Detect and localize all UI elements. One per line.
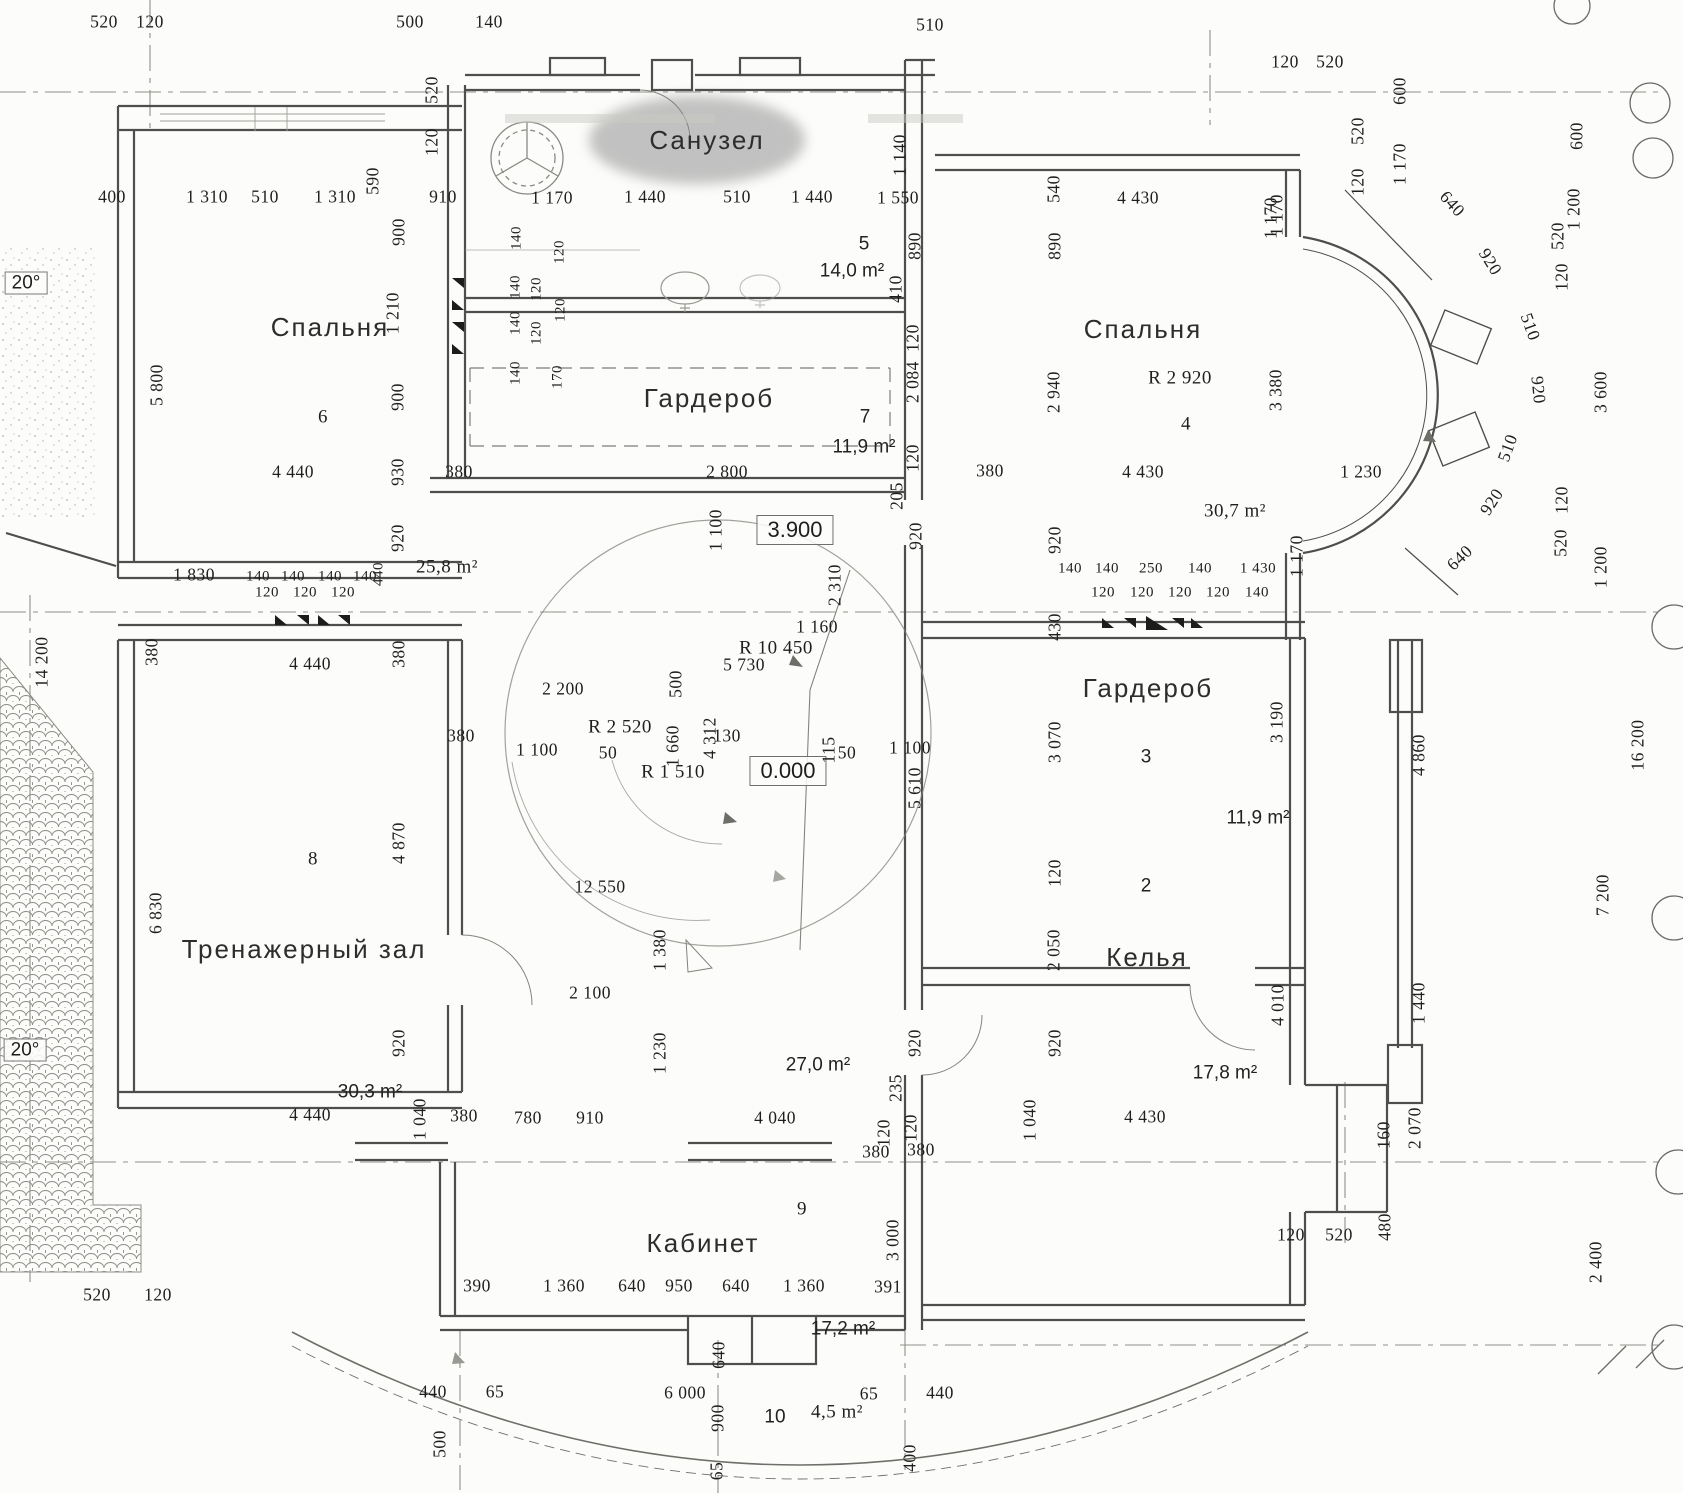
dimension-label: 600 [1391,77,1409,105]
dimension-label: 500 [667,670,685,698]
dimension-label: 1 360 [543,1277,585,1295]
dimension-label: 120 [331,586,355,601]
dimension-label: 410 [887,275,905,303]
dimension-label: 5 800 [148,364,166,406]
dimension-label: 170 [551,365,566,389]
dimension-label: 120 [293,586,317,601]
dimension-label: 380 [450,1107,478,1125]
dimension-label: 11,9 m² [1226,809,1289,828]
dimension-label: 1 550 [877,189,919,207]
labels-layer: 5201205001405101205206005201201 1706001 … [0,0,1683,1493]
dimension-label: 120 [1046,859,1064,887]
slope-label: 20° [4,1039,47,1062]
dimension-label: 1 230 [1340,463,1382,481]
dimension-label: 480 [1376,1213,1394,1241]
dimension-label: 1 430 [1240,562,1276,577]
dimension-label: 3 000 [884,1219,902,1261]
dimension-label: 500 [431,1430,449,1458]
dimension-label: 140 [281,570,305,585]
slope-label: 20° [5,272,48,295]
dimension-label: 4 430 [1124,1108,1166,1126]
dimension-label: 2 [1141,877,1152,896]
room-name-label: Кабинет [647,1230,760,1256]
dimension-label: 1 210 [384,292,402,334]
dimension-label: 380 [862,1143,890,1161]
dimension-label: 2 070 [1406,1107,1424,1149]
dimension-label: 4 430 [1122,463,1164,481]
dimension-label: 120 [423,128,441,156]
dimension-label: 440 [419,1383,447,1401]
dimension-label: 120 [904,324,922,352]
dimension-label: 120 [1206,586,1230,601]
dimension-label: 1 100 [516,741,558,759]
dimension-label: 380 [390,640,408,668]
dimension-label: 3 380 [1267,369,1285,411]
dimension-label: 510 [1517,311,1543,343]
dimension-label: 2 400 [1587,1241,1605,1283]
dimension-label: 1 830 [173,566,215,584]
dimension-label: 2 940 [1045,371,1063,413]
dimension-label: 25,8 m² [416,558,478,577]
dimension-label: 900 [390,218,408,246]
dimension-label: 10 [764,1408,785,1427]
dimension-label: 900 [389,383,407,411]
dimension-label: 1 310 [314,188,356,206]
dimension-label: 65 [860,1385,879,1403]
room-name-label: Санузел [649,127,764,153]
dimension-label: 1 360 [783,1277,825,1295]
dimension-label: 2 100 [569,984,611,1002]
dimension-label: 520 [1549,222,1567,250]
dimension-label: 440 [926,1384,954,1402]
dimension-label: 12 550 [574,878,625,896]
dimension-label: 1 310 [186,188,228,206]
dimension-label: 780 [514,1109,542,1127]
dimension-label: 4 870 [390,822,408,864]
dimension-label: 3 600 [1592,371,1610,413]
dimension-label: 520 [1325,1226,1353,1244]
dimension-label: 2 050 [1045,929,1063,971]
dimension-label: 920 [1046,526,1064,554]
dimension-label: 6 [318,408,328,427]
dimension-label: R 2 920 [1148,369,1212,388]
room-name-label: Тренажерный зал [182,936,427,962]
dimension-label: 910 [429,188,457,206]
dimension-label: 120 [554,298,569,322]
dimension-label: 205 [888,482,906,510]
dimension-label: 520 [1316,53,1344,71]
dimension-label: 380 [143,638,161,666]
dimension-label: 1 170 [1288,535,1306,577]
dimension-label: 140 [510,226,525,250]
dimension-label: 520 [1349,117,1367,145]
dimension-label: 920 [906,1029,924,1057]
dimension-label: 120 [1271,53,1299,71]
dimension-label: 380 [447,727,475,745]
dimension-label: 890 [1046,232,1064,260]
dimension-label: R 1 510 [641,763,705,782]
dimension-label: 400 [98,188,126,206]
dimension-label: 500 [396,13,424,31]
dimension-label: 120 [1091,586,1115,601]
dimension-label: 6 000 [664,1384,706,1402]
dimension-label: 510 [251,188,279,206]
dimension-label: 1 440 [791,188,833,206]
dimension-label: 4 430 [1117,189,1159,207]
dimension-label: 590 [364,167,382,195]
dimension-label: 120 [1349,168,1367,196]
dimension-label: 140 [318,570,342,585]
dimension-label: 140 [246,570,270,585]
dimension-label: 4 010 [1269,984,1287,1026]
dimension-label: 120 [1130,586,1154,601]
dimension-label: 390 [463,1277,491,1295]
room-name-label: Гардероб [1083,675,1213,701]
dimension-label: 400 [901,1444,919,1472]
dimension-label: 5 730 [723,656,765,674]
dimension-label: 6 830 [147,892,165,934]
dimension-label: 520 [423,76,441,104]
room-name-label: Спальня [271,314,389,340]
dimension-label: 1 100 [707,509,725,551]
dimension-label: 30,3 m² [338,1083,402,1102]
dimension-label: 520 [83,1286,111,1304]
dimension-label: 920 [1475,246,1505,279]
dimension-label: 5 610 [906,767,924,809]
dimension-label: 140 [475,13,503,31]
dimension-label: 30,7 m² [1204,502,1266,521]
dimension-label: 640 [1436,188,1468,220]
dimension-label: 140 [1095,562,1119,577]
dimension-label: 440 [372,562,387,586]
dimension-label: 2 200 [542,680,584,698]
dimension-label: 1 200 [1565,188,1583,230]
dimension-label: 2 310 [826,564,844,606]
dimension-label: 14,0 m² [820,262,884,281]
dimension-label: 140 [1188,562,1212,577]
dimension-label: 4 440 [289,655,331,673]
dimension-label: 120 [530,277,545,301]
dimension-label: 250 [1139,562,1163,577]
dimension-label: 120 [144,1286,172,1304]
dimension-label: 900 [709,1404,727,1432]
dimension-label: 920 [390,1029,408,1057]
dimension-label: 4 040 [754,1109,796,1127]
dimension-label: 4 440 [289,1106,331,1124]
dimension-label: 640 [618,1277,646,1295]
dimension-label: 920 [1528,375,1548,404]
dimension-label: 920 [389,524,407,552]
dimension-label: 8 [308,850,318,869]
dimension-label: 1 140 [891,134,909,176]
dimension-label: 160 [1375,1121,1393,1149]
dimension-label: 391 [874,1278,902,1296]
dimension-label: 120 [136,13,164,31]
dimension-label: 14 200 [33,636,51,687]
dimension-label: 1 160 [796,618,838,636]
dimension-label: 1 040 [1021,1099,1039,1141]
dimension-label: 4 440 [272,463,314,481]
dimension-label: 11,9 m² [832,438,895,457]
dimension-label: 640 [710,1341,728,1369]
dimension-label: 510 [916,16,944,34]
level-mark: 0.000 [749,756,826,786]
dimension-label: 120 [1553,486,1571,514]
dimension-label: 2 084 [904,361,922,403]
dimension-label: 3 190 [1268,701,1286,743]
dimension-label: 4 860 [1410,734,1428,776]
dimension-label: 27,0 m² [786,1056,850,1075]
dimension-label: 3 [1141,748,1152,767]
dimension-label: 17,2 m² [811,1320,875,1339]
dimension-label: 1 200 [1592,546,1610,588]
dimension-label: 140 [509,275,524,299]
dimension-label: 540 [1045,175,1063,203]
dimension-label: 520 [1552,529,1570,557]
dimension-label: 520 [90,13,118,31]
dimension-label: 380 [445,463,473,481]
dimension-label: 65 [486,1383,505,1401]
dimension-label: 120 [255,586,279,601]
dimension-label: 640 [722,1277,750,1295]
dimension-label: 640 [1444,542,1476,574]
dimension-label: 920 [907,522,925,550]
dimension-label: 4 [1181,415,1191,434]
dimension-label: 17,8 m² [1193,1064,1257,1083]
dimension-label: 5 [859,235,870,254]
floorplan-page: Поэтажный план (скан) — Санузел / Спальн… [0,0,1683,1493]
dimension-label: 120 [553,240,568,264]
dimension-label: 115 [820,736,838,763]
dimension-label: 1 380 [651,929,669,971]
dimension-label: 50 [838,744,857,762]
dimension-label: 1 170 [1391,143,1409,185]
dimension-label: 920 [1046,1029,1064,1057]
dimension-label: 2 800 [706,463,748,481]
dimension-label: 4,5 m² [811,1403,863,1422]
dimension-label: 600 [1568,122,1586,150]
dimension-label: 7 [860,408,871,427]
dimension-label: 120 [1277,1226,1305,1244]
dimension-label: 65 [708,1462,726,1481]
dimension-label: 1 440 [624,188,666,206]
dimension-label: 1 170 [1268,194,1286,236]
dimension-label: 7 200 [1594,874,1612,916]
level-mark: 3.900 [756,515,833,545]
dimension-label: 1 440 [1410,982,1428,1024]
dimension-label: 120 [1553,263,1571,291]
dimension-label: 120 [902,1114,920,1142]
dimension-label: 930 [389,458,407,486]
dimension-label: 16 200 [1629,719,1647,770]
dimension-label: 120 [904,444,922,472]
dimension-label: 130 [713,727,741,745]
dimension-label: 510 [723,188,751,206]
dimension-label: 890 [906,232,924,260]
dimension-label: 140 [509,311,524,335]
dimension-label: R 2 520 [588,718,652,737]
room-name-label: Келья [1106,944,1188,970]
dimension-label: 120 [1168,586,1192,601]
dimension-label: 1 170 [531,189,573,207]
room-name-label: Гардероб [644,385,774,411]
dimension-label: 9 [797,1200,807,1219]
dimension-label: 510 [1495,432,1521,464]
dimension-label: 950 [665,1277,693,1295]
dimension-label: 1 100 [889,739,931,757]
dimension-label: 1 230 [651,1032,669,1074]
dimension-label: 235 [887,1074,905,1102]
dimension-label: 1 040 [411,1098,429,1140]
dimension-label: 3 070 [1046,721,1064,763]
dimension-label: 50 [599,744,618,762]
dimension-label: 380 [907,1141,935,1159]
dimension-label: 140 [1058,562,1082,577]
dimension-label: 910 [576,1109,604,1127]
dimension-label: 120 [530,321,545,345]
dimension-label: 920 [1477,486,1507,519]
dimension-label: 380 [976,462,1004,480]
room-name-label: Спальня [1084,316,1202,342]
dimension-label: 140 [1245,586,1269,601]
dimension-label: 430 [1046,613,1064,641]
dimension-label: 140 [509,361,524,385]
